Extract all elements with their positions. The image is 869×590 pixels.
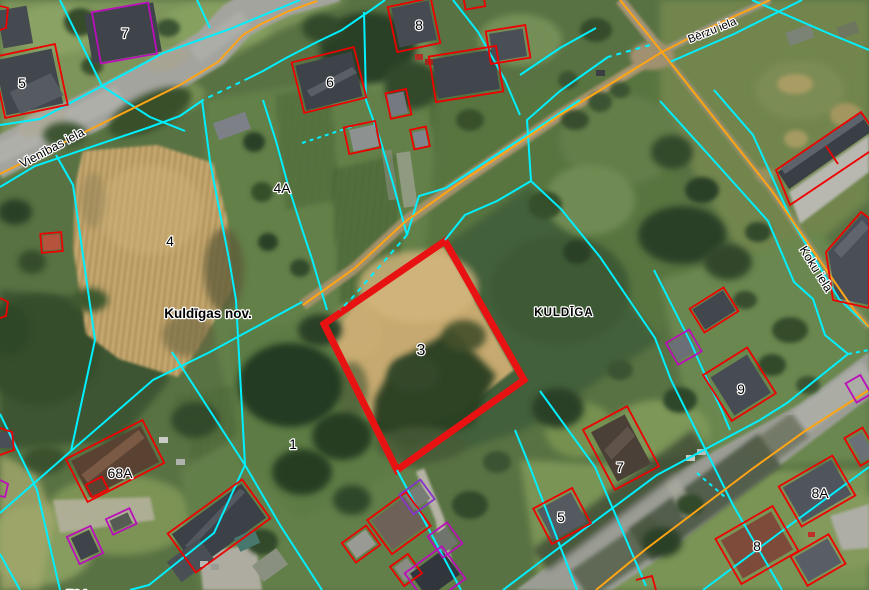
svg-text:8: 8	[753, 538, 761, 554]
svg-text:6: 6	[326, 74, 334, 90]
svg-text:68A: 68A	[108, 465, 134, 481]
svg-text:5: 5	[557, 509, 565, 525]
svg-text:8A: 8A	[811, 485, 829, 501]
svg-text:1: 1	[289, 436, 297, 452]
svg-text:4: 4	[166, 233, 174, 249]
svg-text:9: 9	[737, 381, 745, 397]
svg-text:7: 7	[121, 25, 129, 41]
svg-text:4A: 4A	[273, 180, 291, 196]
svg-text:KULDĪGA: KULDĪGA	[534, 307, 593, 319]
svg-text:8: 8	[415, 17, 423, 33]
svg-text:7: 7	[616, 459, 624, 475]
svg-text:3: 3	[417, 342, 426, 359]
svg-text:Kuldīgas nov.: Kuldīgas nov.	[164, 306, 252, 321]
svg-text:5: 5	[18, 75, 26, 91]
